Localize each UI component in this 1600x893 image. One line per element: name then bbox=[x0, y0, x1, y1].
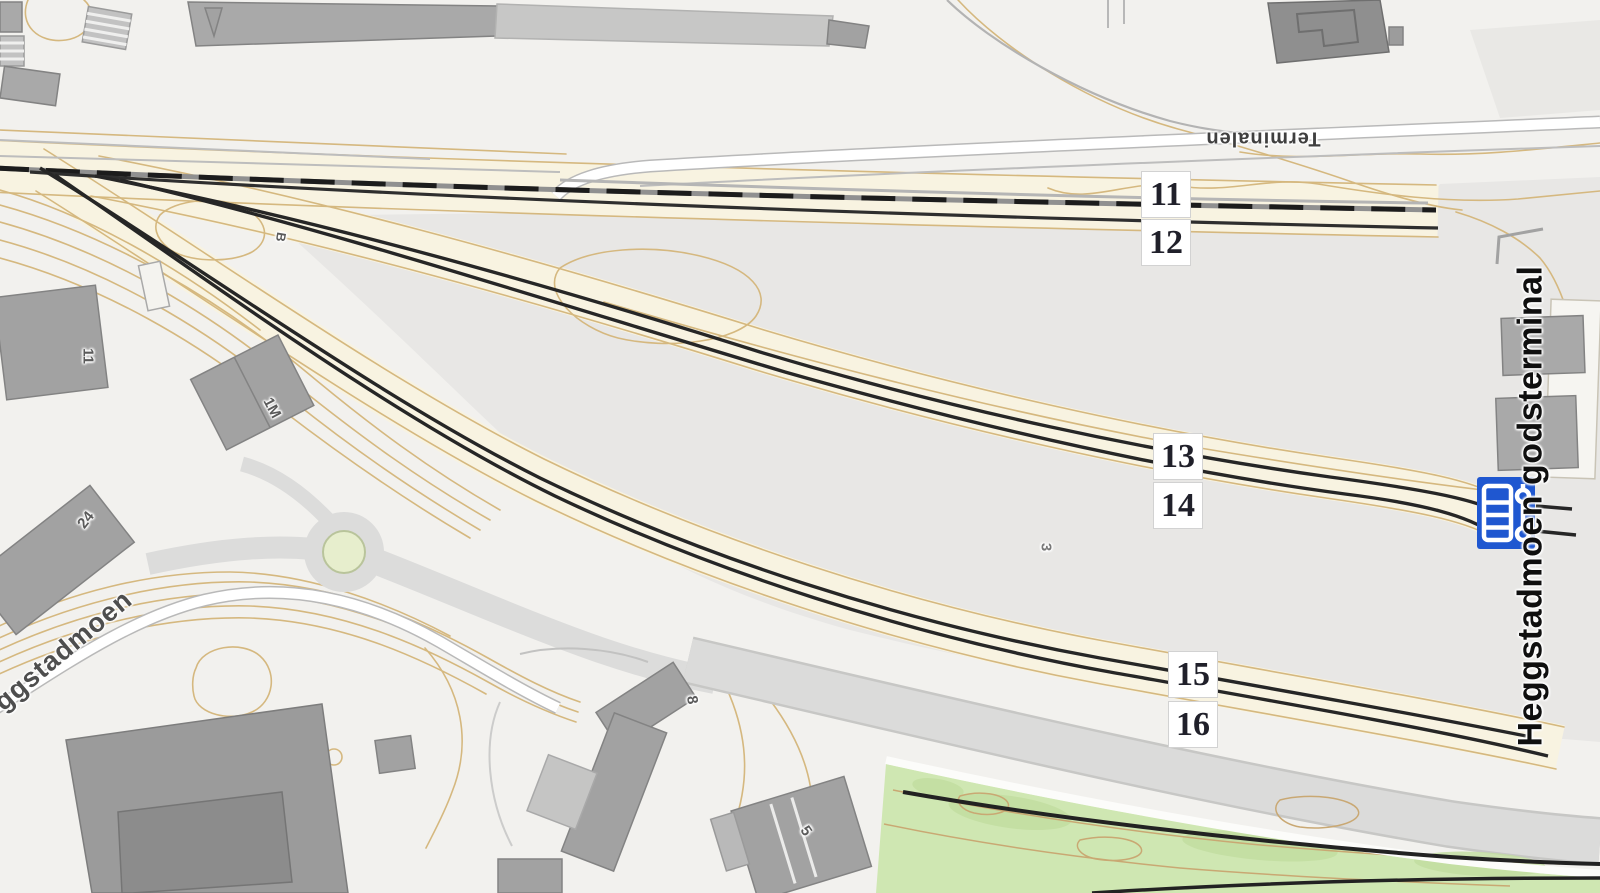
track-label-12: 12 bbox=[1141, 219, 1191, 266]
track-label-13: 13 bbox=[1153, 433, 1203, 480]
terminal-name-label: Heggstadmoen godsterminal bbox=[1512, 265, 1551, 746]
map-viewport[interactable]: 11 12 13 14 15 16 Terminalen ggstadmoen … bbox=[0, 0, 1600, 893]
track-label-15: 15 bbox=[1168, 651, 1218, 698]
track-label-14: 14 bbox=[1153, 482, 1203, 529]
track-label-16: 16 bbox=[1168, 701, 1218, 748]
map-canvas bbox=[0, 0, 1600, 893]
track-label-11: 11 bbox=[1141, 171, 1191, 218]
roundabout-island bbox=[323, 531, 365, 573]
area-number-3: 3 bbox=[1038, 543, 1055, 551]
building-number-11: 11 bbox=[80, 348, 97, 364]
street-label-terminalen: Terminalen bbox=[1205, 127, 1320, 150]
